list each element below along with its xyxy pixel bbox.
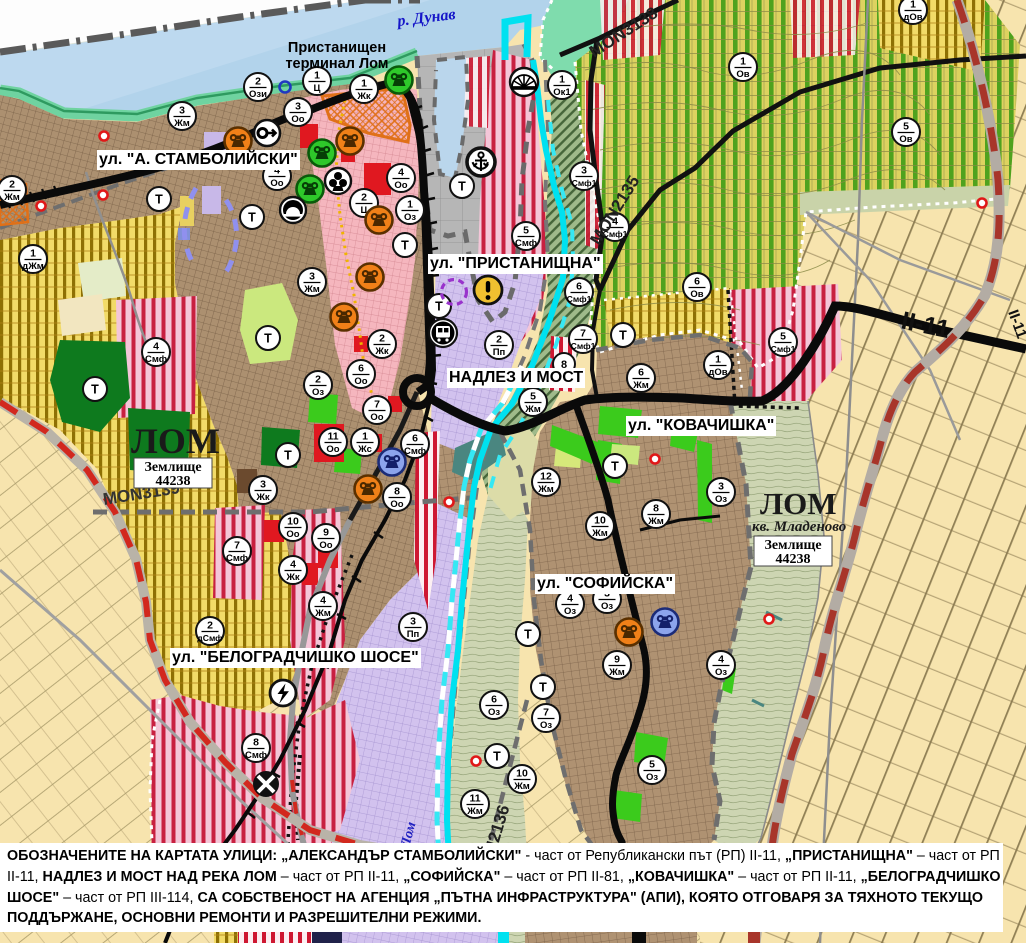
svg-text:дОв: дОв	[903, 12, 922, 23]
svg-text:Ов: Ов	[736, 69, 749, 80]
svg-text:Т: Т	[493, 750, 501, 764]
svg-text:12: 12	[540, 471, 552, 483]
svg-text:Жм: Жм	[591, 528, 608, 539]
svg-text:Смф: Смф	[515, 238, 537, 249]
svg-text:3: 3	[718, 481, 724, 493]
svg-text:4: 4	[567, 593, 573, 605]
svg-text:Оз: Оз	[540, 720, 552, 731]
svg-text:2: 2	[361, 192, 367, 204]
svg-text:Ц: Ц	[314, 83, 321, 94]
svg-text:ЛОМ: ЛОМ	[131, 421, 220, 461]
svg-text:1: 1	[910, 0, 916, 11]
svg-text:11: 11	[469, 793, 480, 805]
svg-text:Жм: Жм	[632, 380, 649, 391]
svg-text:Т: Т	[611, 460, 619, 474]
svg-text:Ов: Ов	[899, 134, 912, 145]
svg-text:Жм: Жм	[314, 608, 331, 619]
svg-text:2: 2	[315, 374, 321, 386]
svg-text:Жк: Жк	[255, 492, 270, 503]
svg-text:10: 10	[594, 515, 606, 527]
svg-text:Т: Т	[435, 300, 443, 314]
svg-text:6: 6	[694, 276, 700, 288]
svg-text:7: 7	[234, 540, 240, 552]
svg-text:Т: Т	[155, 193, 163, 207]
svg-text:Жм: Жм	[537, 484, 554, 495]
svg-text:Жк: Жк	[356, 91, 371, 102]
svg-text:1: 1	[740, 56, 746, 68]
svg-text:7: 7	[543, 707, 549, 719]
svg-text:Смф: Смф	[245, 750, 267, 761]
svg-text:Т: Т	[524, 628, 532, 642]
svg-text:Оо: Оо	[370, 412, 383, 423]
svg-text:7: 7	[374, 399, 380, 411]
svg-text:Смф1: Смф1	[771, 344, 796, 354]
svg-text:6: 6	[491, 694, 497, 706]
svg-text:4: 4	[718, 654, 724, 666]
svg-text:Оо: Оо	[286, 529, 299, 540]
svg-text:2: 2	[9, 179, 15, 191]
svg-text:Т: Т	[91, 383, 99, 397]
svg-text:1: 1	[362, 431, 368, 443]
svg-text:Оз: Оз	[715, 494, 727, 505]
svg-text:1: 1	[30, 248, 36, 260]
svg-text:Ози: Ози	[249, 89, 267, 100]
svg-text:6: 6	[412, 433, 418, 445]
svg-text:5: 5	[903, 121, 909, 133]
svg-text:5: 5	[530, 391, 536, 403]
svg-text:2: 2	[379, 333, 385, 345]
svg-text:5: 5	[649, 759, 655, 771]
svg-text:Пп: Пп	[407, 629, 420, 640]
svg-text:Оо: Оо	[326, 444, 339, 455]
svg-text:11: 11	[327, 431, 338, 443]
svg-text:2: 2	[207, 620, 213, 632]
svg-text:Оо: Оо	[270, 178, 283, 189]
svg-text:Жк: Жк	[285, 572, 300, 583]
svg-text:6: 6	[358, 363, 364, 375]
svg-text:Оз: Оз	[646, 772, 658, 783]
svg-text:6: 6	[638, 367, 644, 379]
svg-text:Смф1: Смф1	[567, 294, 592, 304]
svg-text:Оз: Оз	[488, 707, 500, 718]
svg-text:5: 5	[523, 225, 529, 237]
svg-text:4: 4	[398, 167, 404, 179]
svg-text:2: 2	[255, 76, 261, 88]
svg-text:Оз: Оз	[404, 212, 416, 223]
svg-text:Смф: Смф	[145, 354, 167, 365]
svg-text:1: 1	[715, 354, 721, 366]
svg-text:44238: 44238	[776, 552, 811, 567]
svg-text:Жм: Жм	[466, 806, 483, 817]
svg-text:3: 3	[309, 271, 315, 283]
svg-text:Жк: Жк	[374, 346, 389, 357]
svg-text:Смф1: Смф1	[571, 341, 596, 351]
svg-text:Землище: Землище	[764, 538, 821, 553]
svg-text:Оз: Оз	[601, 601, 613, 612]
svg-text:Т: Т	[248, 211, 256, 225]
svg-text:Пристанищен: Пристанищен	[288, 40, 386, 56]
svg-text:1: 1	[407, 199, 413, 211]
svg-text:Жм: Жм	[303, 284, 320, 295]
svg-text:4: 4	[153, 341, 159, 353]
svg-text:Жм: Жм	[524, 404, 541, 415]
svg-text:5: 5	[780, 331, 786, 343]
svg-text:дОв: дОв	[708, 367, 727, 378]
svg-text:1: 1	[361, 78, 367, 90]
svg-text:Смф: Смф	[404, 446, 426, 457]
svg-text:дЖм: дЖм	[22, 261, 44, 272]
svg-text:44238: 44238	[156, 474, 191, 489]
svg-text:Оз: Оз	[564, 606, 576, 617]
svg-text:Землище: Землище	[144, 460, 201, 475]
svg-text:1: 1	[559, 74, 565, 86]
svg-text:Жм: Жм	[608, 667, 625, 678]
svg-text:3: 3	[410, 616, 416, 628]
svg-text:Жм: Жм	[647, 516, 664, 527]
svg-text:Смф1: Смф1	[572, 178, 597, 188]
svg-text:Жм: Жм	[173, 118, 190, 129]
svg-text:8: 8	[653, 503, 659, 515]
svg-text:8: 8	[394, 486, 400, 498]
svg-text:Оо: Оо	[291, 114, 304, 125]
svg-text:кв. Младеново: кв. Младеново	[752, 519, 846, 535]
svg-text:Т: Т	[619, 329, 627, 343]
svg-text:3: 3	[581, 165, 587, 177]
svg-text:дСмф: дСмф	[197, 633, 223, 643]
svg-text:3: 3	[260, 479, 266, 491]
svg-text:4: 4	[290, 559, 296, 571]
svg-text:Жм: Жм	[3, 192, 20, 203]
svg-text:Жм: Жм	[513, 781, 530, 792]
svg-text:3: 3	[295, 101, 301, 113]
svg-text:Оо: Оо	[354, 376, 367, 387]
svg-text:Ок1: Ок1	[553, 87, 571, 98]
svg-text:10: 10	[287, 516, 299, 528]
svg-text:7: 7	[580, 328, 586, 340]
svg-text:8: 8	[253, 737, 259, 749]
svg-text:Оз: Оз	[312, 387, 324, 398]
svg-text:Жс: Жс	[357, 444, 372, 455]
svg-text:ЛОМ: ЛОМ	[760, 486, 836, 521]
svg-text:Ов: Ов	[690, 289, 703, 300]
svg-text:9: 9	[323, 527, 329, 539]
svg-text:9: 9	[614, 654, 620, 666]
svg-text:Т: Т	[264, 332, 272, 346]
svg-text:Оо: Оо	[394, 180, 407, 191]
svg-text:Пп: Пп	[493, 347, 506, 358]
svg-text:Оз: Оз	[715, 667, 727, 678]
svg-text:6: 6	[576, 281, 582, 293]
svg-text:Оо: Оо	[390, 499, 403, 510]
svg-text:Т: Т	[284, 449, 292, 463]
svg-text:Смф: Смф	[226, 553, 248, 564]
svg-text:терминал Лом: терминал Лом	[285, 56, 388, 72]
svg-text:4: 4	[320, 595, 326, 607]
svg-text:Т: Т	[401, 239, 409, 253]
svg-text:3: 3	[179, 105, 185, 117]
svg-text:Оо: Оо	[319, 540, 332, 551]
svg-text:2: 2	[496, 334, 502, 346]
svg-text:10: 10	[516, 768, 528, 780]
svg-text:Т: Т	[458, 180, 466, 194]
svg-text:Т: Т	[539, 681, 547, 695]
